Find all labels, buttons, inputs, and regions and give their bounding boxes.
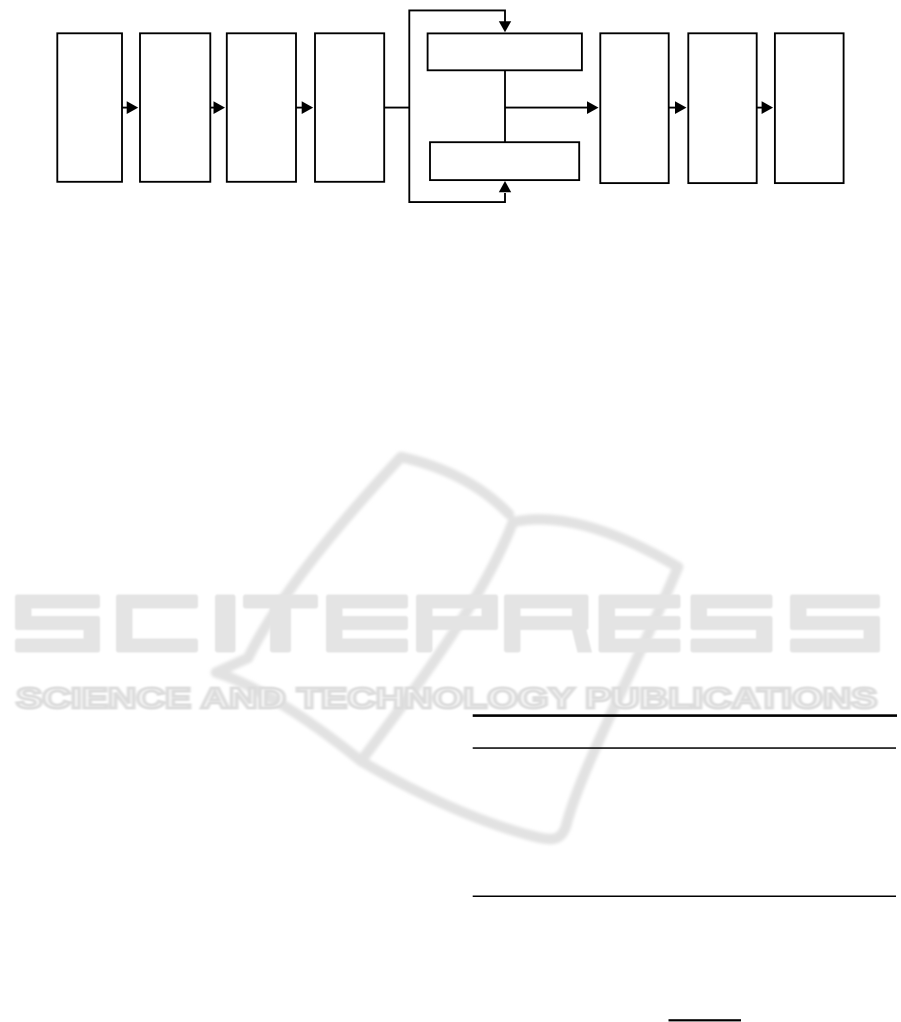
svg-text:SCIENCE AND TECHNOLOGY PUBLICA: SCIENCE AND TECHNOLOGY PUBLICATIONS: [16, 683, 877, 715]
